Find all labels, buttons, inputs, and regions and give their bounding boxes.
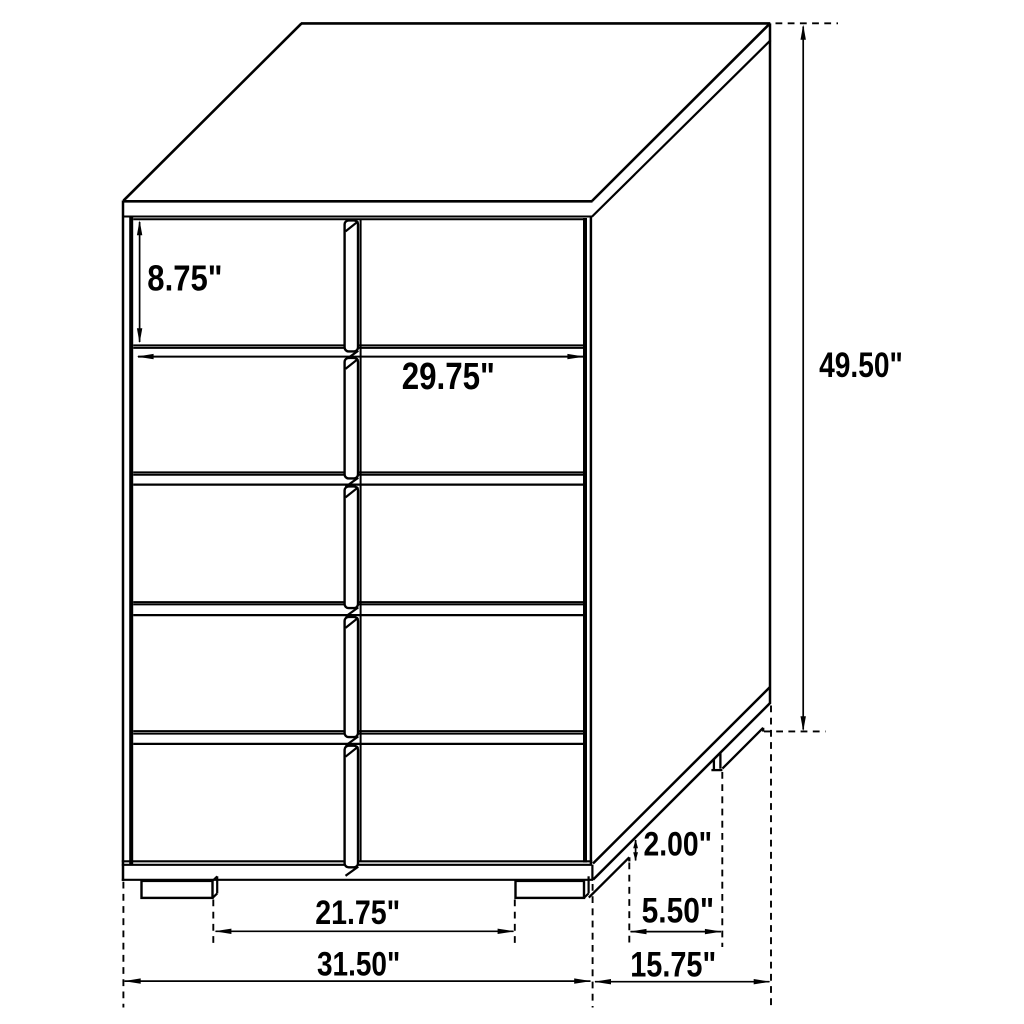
svg-text:49.50": 49.50" [819,346,903,385]
svg-text:8.75": 8.75" [147,257,222,298]
svg-text:21.75": 21.75" [315,894,400,932]
svg-text:29.75": 29.75" [402,356,495,398]
svg-text:31.50": 31.50" [317,946,400,984]
svg-text:15.75": 15.75" [630,946,716,985]
svg-text:2.00": 2.00" [644,826,713,864]
svg-text:5.50": 5.50" [642,891,715,930]
